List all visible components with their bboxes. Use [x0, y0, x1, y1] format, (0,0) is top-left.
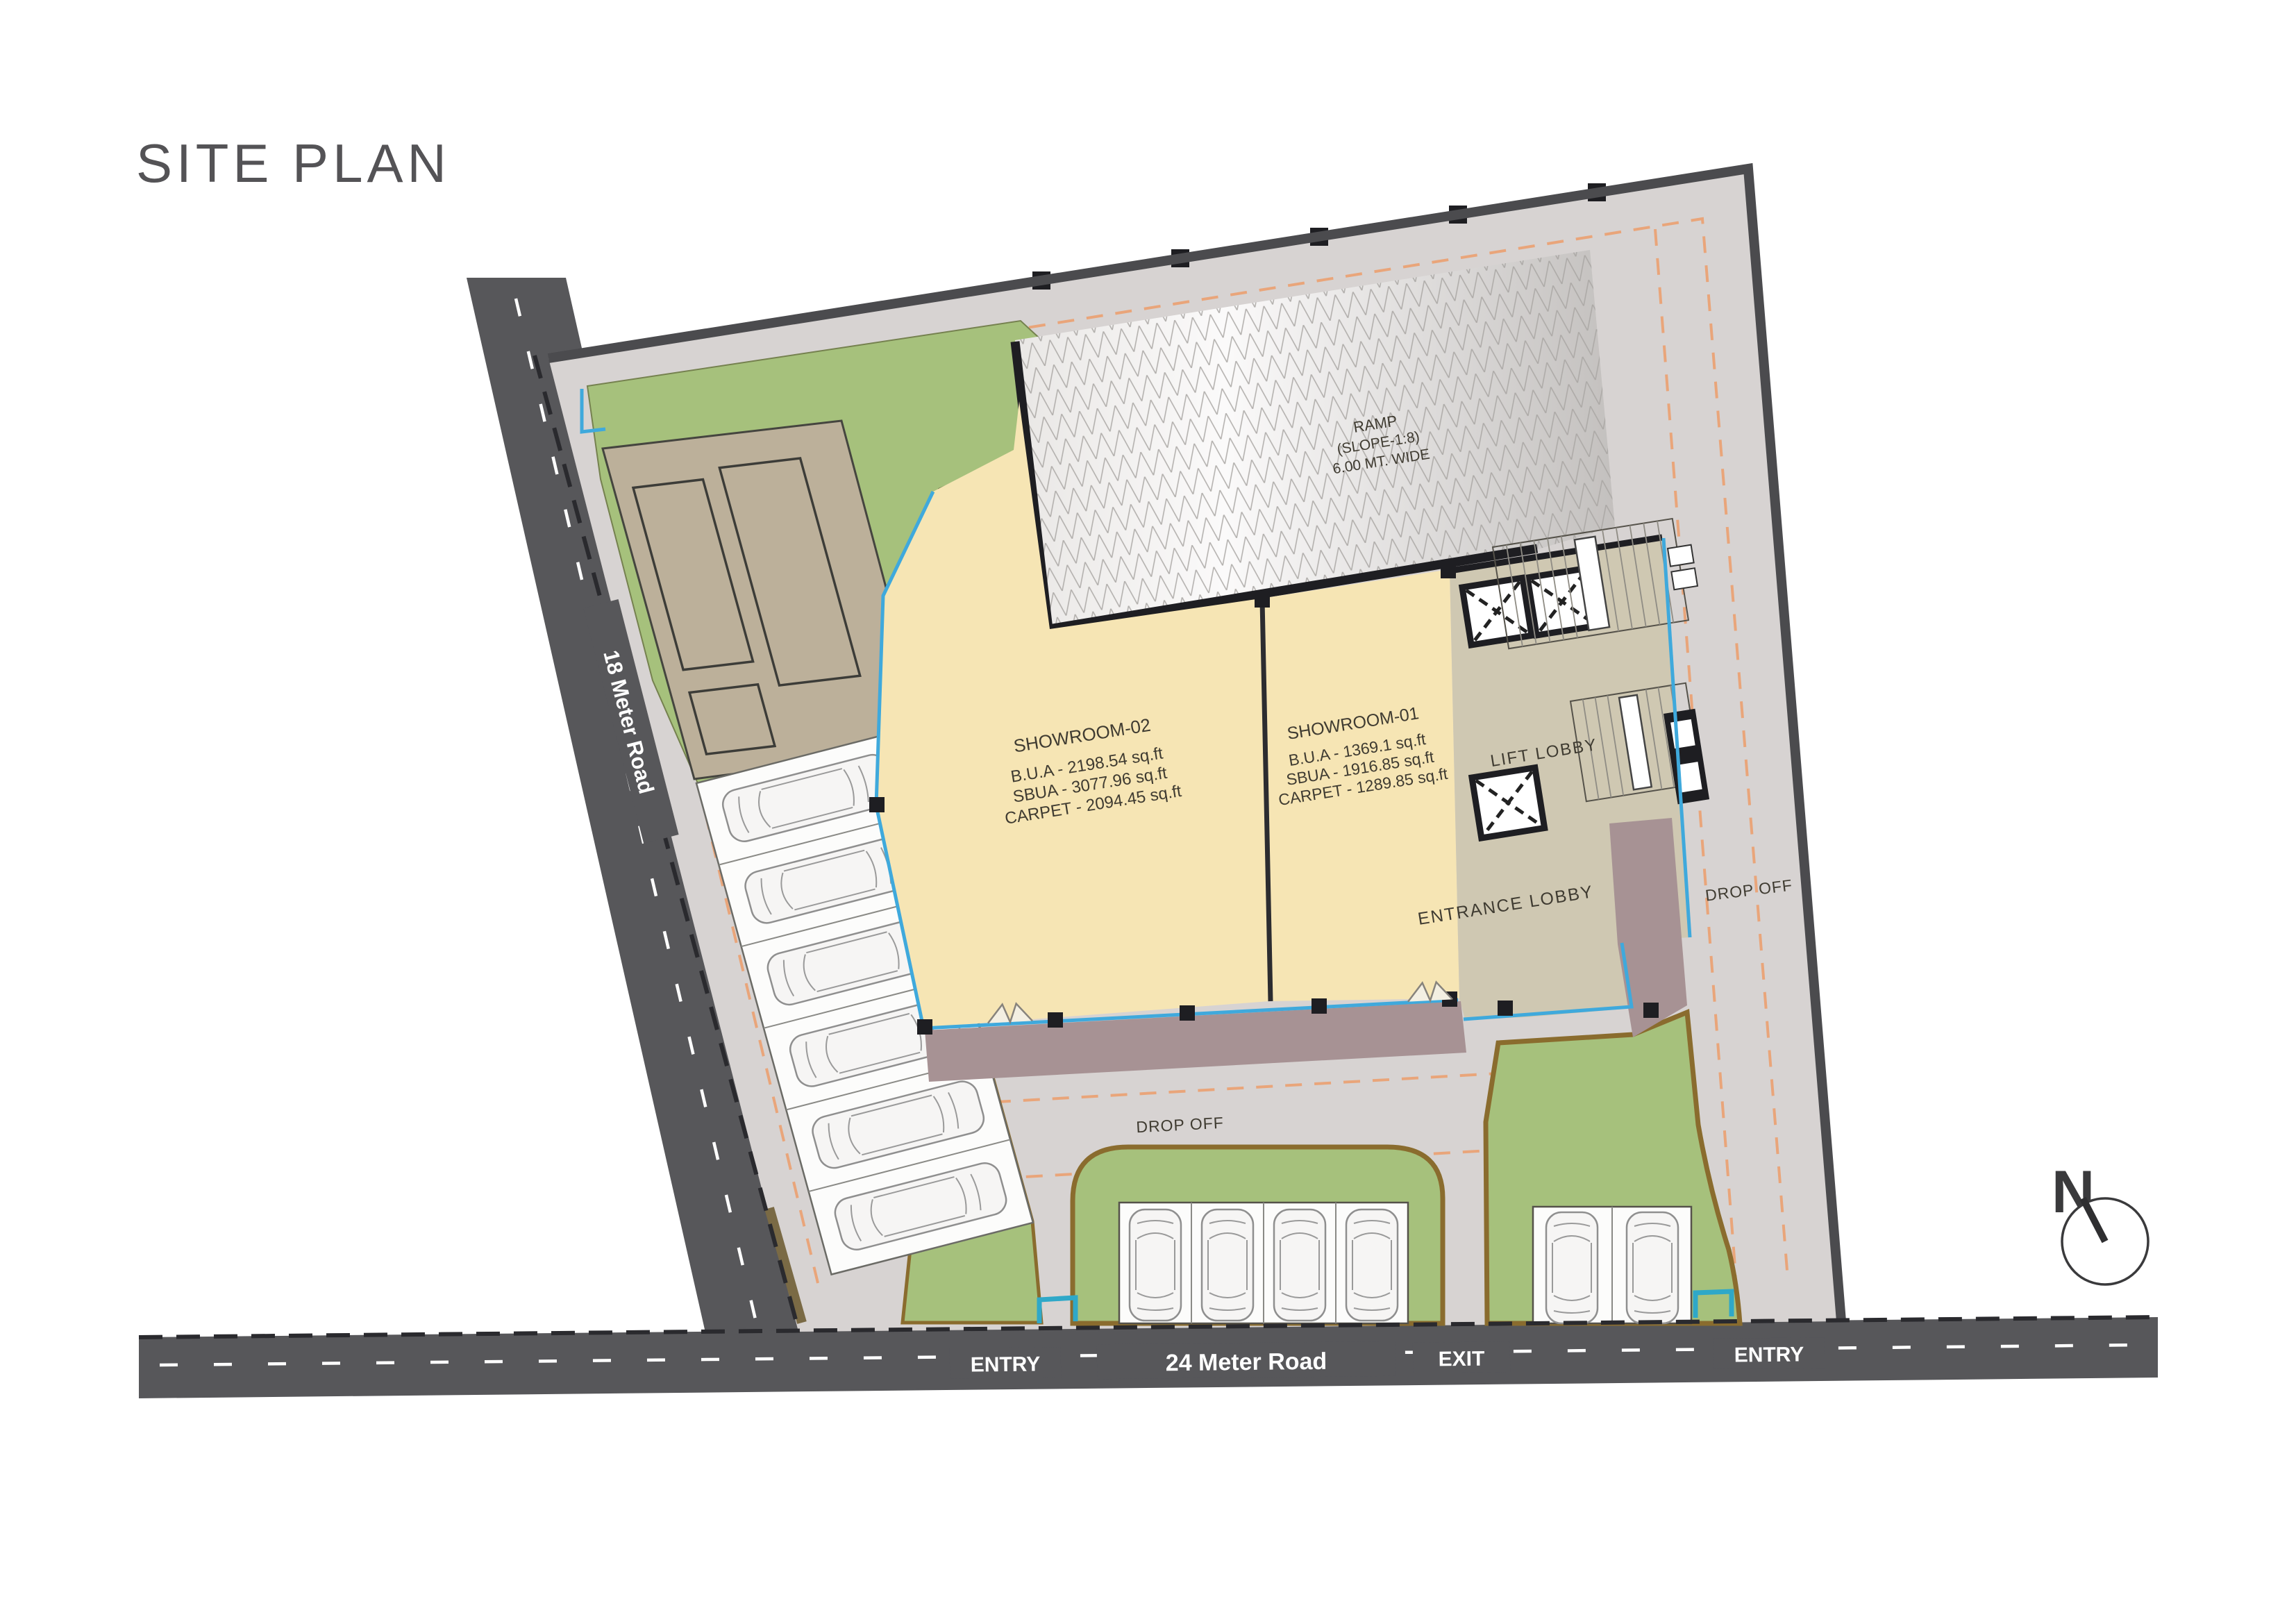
car — [1627, 1212, 1678, 1323]
exit-text: EXIT — [1438, 1348, 1484, 1371]
car — [1130, 1209, 1181, 1321]
page-title: SITE PLAN — [136, 133, 451, 194]
entry-right-text: ENTRY — [1734, 1343, 1804, 1366]
exit-label: EXIT — [1413, 1341, 1510, 1373]
parking-bottom-center — [1119, 1203, 1408, 1323]
car — [1202, 1209, 1253, 1321]
entry-left-label: ENTRY — [950, 1347, 1061, 1379]
lift-shaft — [1472, 768, 1545, 838]
road-24-label-text: 24 Meter Road — [1166, 1348, 1327, 1376]
north-compass: N — [2052, 1159, 2148, 1284]
parking-bottom-right — [1533, 1207, 1691, 1323]
entry-left-text: ENTRY — [971, 1353, 1041, 1376]
car — [1346, 1209, 1398, 1321]
entry-right-label: ENTRY — [1713, 1337, 1825, 1369]
road-24-label: 24 Meter Road — [1097, 1341, 1396, 1380]
car — [1546, 1212, 1598, 1323]
site-plan-drawing: RAMP (SLOPE-1:8) 6.00 MT. WIDE SHOWROOM-… — [0, 0, 2296, 1624]
site-plan-page: RAMP (SLOPE-1:8) 6.00 MT. WIDE SHOWROOM-… — [0, 0, 2296, 1624]
car — [1274, 1209, 1325, 1321]
